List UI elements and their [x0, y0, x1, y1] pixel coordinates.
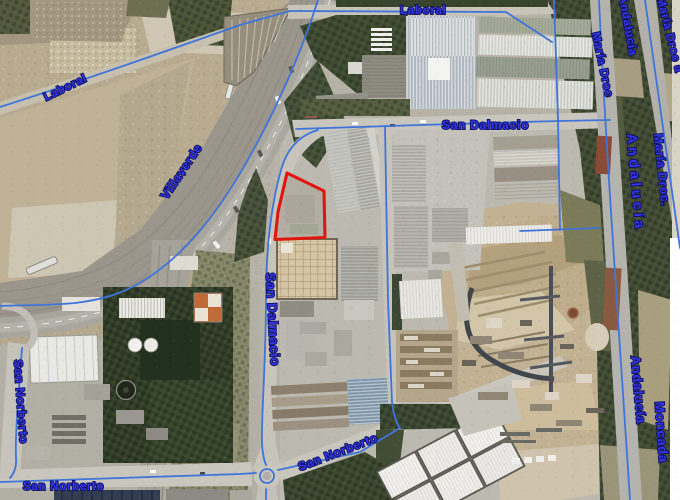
svg-text:San Dalmacio: San Dalmacio — [442, 118, 529, 132]
svg-text:San Norberto: San Norberto — [23, 481, 104, 493]
svg-text:Laboral: Laboral — [400, 5, 446, 17]
